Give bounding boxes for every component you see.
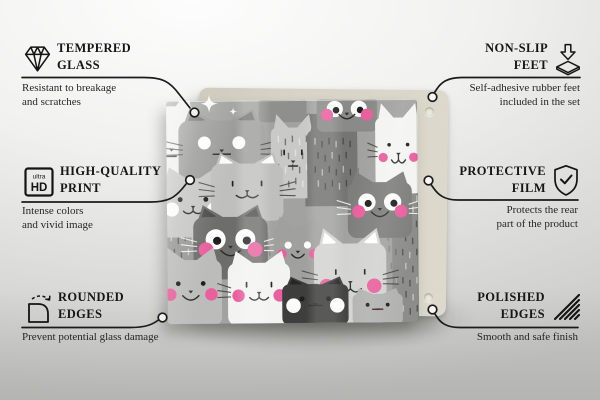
desc-line: and scratches [22, 96, 116, 110]
callout-desc-high-quality-print: Intense colors and vivid image [22, 205, 93, 232]
glass-edge-highlight [166, 99, 419, 324]
title-line: FEET [485, 57, 548, 74]
callout-desc-non-slip-feet: Self-adhesive rubber feet included in th… [469, 82, 580, 109]
ultra-hd-icon-top-text: ultra [33, 174, 46, 181]
title-line: ROUNDED [58, 289, 124, 306]
rubber-foot-arrow-icon [554, 43, 582, 76]
sparkle-icon [198, 93, 220, 115]
title-line: POLISHED [477, 289, 545, 306]
desc-line: Prevent potential glass damage [22, 331, 159, 345]
callout-desc-rounded-edges: Prevent potential glass damage [22, 331, 159, 345]
callout-title-tempered-glass: TEMPERED GLASS [57, 40, 131, 73]
desc-line: included in the set [469, 96, 580, 110]
ultra-hd-icon-main-text: HD [31, 182, 48, 194]
title-line: GLASS [57, 57, 131, 74]
desc-line: Protects the rear [496, 204, 578, 218]
rubber-foot-bottom [424, 293, 433, 302]
desc-line: Smooth and safe finish [477, 331, 578, 345]
rounded-corner-arrow-icon [23, 291, 55, 325]
desc-line: Intense colors [22, 205, 93, 219]
ultra-hd-icon: ultra HD [24, 167, 54, 197]
title-line: NON-SLIP [485, 40, 548, 57]
title-line: PRINT [60, 180, 161, 197]
title-line: HIGH-QUALITY [60, 163, 161, 180]
callout-title-protective-film: PROTECTIVE FILM [459, 163, 546, 196]
title-line: TEMPERED [57, 40, 131, 57]
desc-line: Resistant to breakage [22, 82, 116, 96]
sparkle-icon [228, 107, 238, 117]
callout-title-non-slip-feet: NON-SLIP FEET [485, 40, 548, 73]
title-line: EDGES [477, 306, 545, 323]
diagonal-hatch-icon [551, 291, 581, 321]
callout-title-polished-edges: POLISHED EDGES [477, 289, 545, 322]
desc-line: Self-adhesive rubber feet [469, 82, 580, 96]
title-line: FILM [459, 180, 546, 197]
title-line: EDGES [58, 306, 124, 323]
title-line: PROTECTIVE [459, 163, 546, 180]
rubber-foot-top [425, 107, 434, 116]
callout-desc-tempered-glass: Resistant to breakage and scratches [22, 82, 116, 109]
desc-line: and vivid image [22, 219, 93, 233]
callout-desc-protective-film: Protects the rear part of the product [496, 204, 578, 231]
shield-check-icon [552, 164, 580, 197]
diamond-icon [21, 44, 54, 74]
callout-desc-polished-edges: Smooth and safe finish [477, 331, 578, 345]
desc-line: part of the product [496, 218, 578, 232]
callout-title-high-quality-print: HIGH-QUALITY PRINT [60, 163, 161, 196]
callout-title-rounded-edges: ROUNDED EDGES [58, 289, 124, 322]
glass-board [166, 99, 419, 324]
